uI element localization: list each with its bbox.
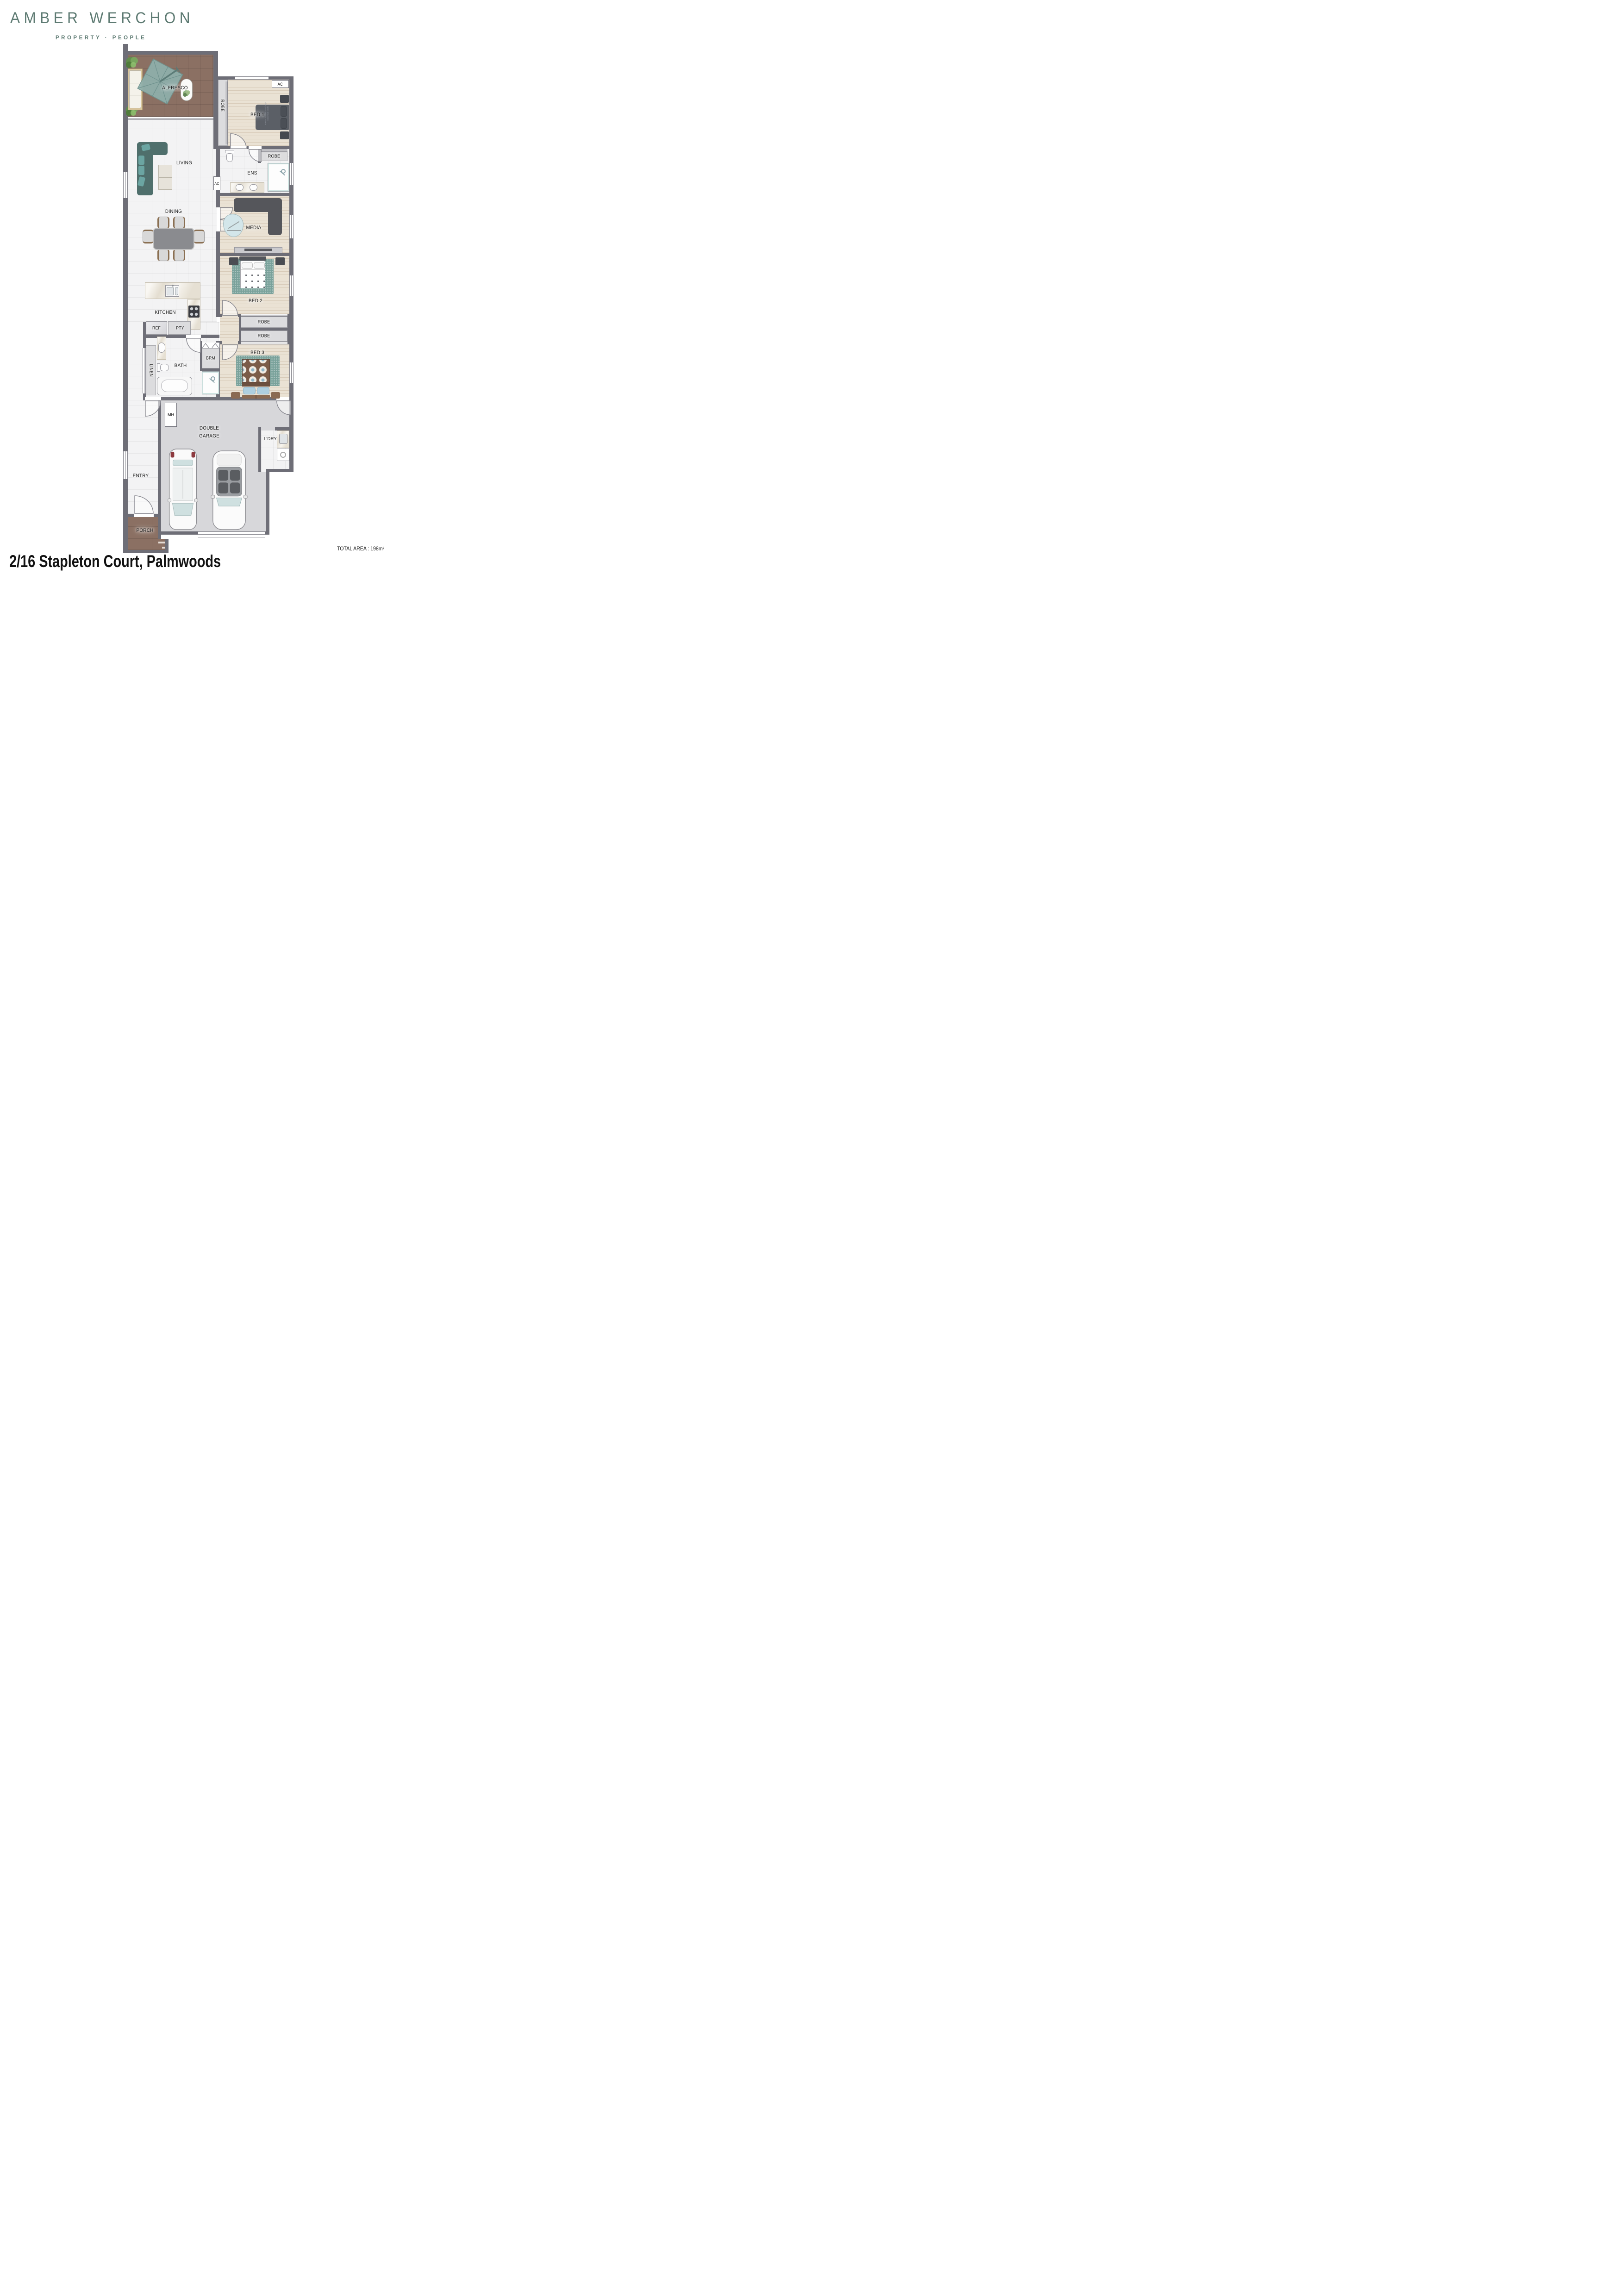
bed3-robe-slider: [241, 342, 287, 344]
wall-garage-top-a: [143, 397, 145, 400]
room-label-ens-robe: ROBE: [268, 154, 281, 159]
room-label-bed2: BED 2: [249, 298, 262, 304]
room-label-bed1: BED 1: [250, 112, 264, 118]
bath-shower: [202, 371, 219, 394]
linen-louvre-doors: [143, 348, 146, 393]
ac-unit-bed1: AC: [272, 80, 289, 88]
bath-basin: [158, 343, 165, 353]
kitchen-sink: [165, 285, 179, 297]
window-east-bed2: [289, 275, 294, 296]
ens-basin: [236, 184, 244, 191]
ac-label: AC: [214, 181, 219, 186]
mh-label: MH: [168, 412, 174, 417]
room-label-brm: BRM: [206, 356, 215, 361]
wall-ldry-west: [258, 430, 261, 472]
door-ens: [249, 149, 262, 162]
bathtub-inner: [161, 380, 188, 392]
room-label-garage: DOUBLE GARAGE: [195, 424, 224, 440]
meter-box: MH: [165, 403, 177, 427]
garage-door: [198, 531, 265, 537]
toilet-bowl-ens: [226, 153, 233, 162]
tv-screen: [244, 249, 272, 251]
door-garage-west: [145, 400, 161, 417]
sink-drainer: [175, 287, 178, 295]
bathtub: [157, 377, 192, 395]
bed1-side-table: [280, 131, 289, 139]
dining-chair: [173, 217, 185, 229]
room-label-bath: BATH: [175, 363, 187, 368]
wall-ldry-top-b: [275, 427, 294, 430]
bed2-duvet: [241, 269, 265, 288]
wall-entry-bottom-a: [123, 514, 134, 517]
room-label-entry: ENTRY: [133, 473, 149, 479]
ac-unit-living: AC: [213, 176, 220, 190]
washing-machine: [277, 449, 289, 461]
sofa-cushion: [138, 156, 144, 165]
west-hall-floor: [128, 322, 143, 400]
bed1-pillow: [281, 118, 287, 129]
bed3-side-table: [271, 392, 280, 399]
wall-entry-bottom-b: [154, 514, 161, 517]
ac-label: AC: [278, 82, 283, 87]
dining-chair: [157, 249, 169, 261]
wall-alfresco-east: [213, 51, 218, 149]
wall-media-bottom: [216, 253, 294, 256]
window-east-ens: [289, 163, 294, 185]
bed1-duvet-text: Buenas Noches Good Night bonne nuit Nach…: [264, 101, 269, 126]
wall-garage-bottom-a: [161, 531, 198, 535]
faucet-icon: [172, 285, 174, 287]
alfresco-sliding-door: [128, 117, 213, 120]
room-label-media: MEDIA: [246, 225, 262, 231]
table-decor-line: [227, 230, 241, 231]
media-coffee-table: [223, 214, 244, 237]
window-east-bed3: [289, 362, 294, 383]
table-decor-line: [228, 221, 240, 229]
label-ref: REF: [152, 326, 161, 331]
room-label-bed1-robe: ROBE: [220, 100, 225, 112]
room-label-living: LIVING: [176, 160, 192, 166]
ldry-sink: [279, 434, 287, 444]
bed3-duvet: [242, 359, 270, 382]
wall-bed1-bottom-c: [262, 146, 294, 149]
window-west-entry: [123, 451, 128, 479]
window-east-media: [289, 215, 294, 238]
room-label-robe-bed2: ROBE: [258, 320, 270, 325]
bed3-pillow: [243, 387, 256, 394]
wall-garage-west: [158, 400, 161, 539]
floorplan-page: AMBER WERCHON PROPERTY · PEOPLE: [0, 0, 406, 574]
sofa-cushion: [138, 166, 144, 175]
cooktop-icon: [188, 306, 200, 318]
room-label-dining: DINING: [165, 209, 182, 214]
wall-alfresco-top: [123, 51, 213, 55]
door-bed1: [230, 133, 247, 149]
dining-table: [153, 228, 194, 250]
wall-garage-top-c: [291, 397, 294, 400]
brm-bifold-doors: [202, 343, 219, 348]
bed3-side-table: [231, 392, 240, 399]
wall-bed1-bottom-a: [213, 146, 230, 149]
room-label-ens: ENS: [247, 170, 257, 176]
bed2-pillow: [242, 262, 253, 269]
bed1-side-table: [280, 95, 289, 103]
wall-ldry-top-a: [258, 427, 261, 430]
wall-porch-right: [165, 539, 169, 553]
dining-chair: [143, 230, 154, 243]
toilet-tank-ens: [225, 150, 234, 153]
ens-shower: [268, 163, 289, 192]
toilet-bowl-bath: [160, 364, 169, 371]
brand-logo: AMBER WERCHON: [10, 9, 194, 27]
door-garage-east: [276, 400, 291, 415]
window-bed1-top: [235, 76, 269, 80]
washer-drum: [280, 452, 286, 458]
wall-notch-horiz: [269, 469, 294, 472]
room-label-porch: PORCH: [136, 528, 153, 533]
sink-basin: [167, 287, 174, 295]
toilet-tank-bath: [157, 363, 160, 372]
wall-bed1-bottom-b: [247, 146, 249, 149]
room-label-bed3: BED 3: [250, 350, 264, 356]
bed1-pillow: [281, 106, 287, 117]
garage-notch-cutout: [269, 472, 294, 535]
bed2-pillow: [254, 262, 265, 269]
bed3-pillow: [257, 387, 269, 394]
dining-chair: [194, 230, 205, 243]
bed3-footboard: [242, 395, 270, 399]
bed1-robe-slider: [225, 81, 228, 144]
bed2-bed: [240, 261, 265, 288]
room-label-ldry: L'DRY: [264, 436, 277, 442]
door-front: [134, 495, 154, 514]
media-sofa-right: [268, 208, 282, 235]
window-west-living: [123, 172, 128, 198]
bed2-headboard: [239, 256, 266, 261]
property-address: 2/16 Stapleton Court, Palmwoods: [9, 552, 221, 571]
wall-bath-top-b: [201, 335, 219, 338]
wall-notch-vert: [266, 469, 269, 535]
label-pty: PTY: [176, 326, 184, 331]
room-label-linen: LINEN: [149, 364, 154, 377]
brand-tagline: PROPERTY · PEOPLE: [56, 35, 146, 41]
room-label-robe-bed3: ROBE: [258, 334, 270, 339]
bed2-side-table: [275, 257, 285, 265]
wall-bed2-bottom-a: [216, 314, 222, 317]
wall-mid-b: [216, 231, 220, 317]
room-label-alfresco: ALFRESCO: [162, 85, 188, 91]
ens-basin: [250, 184, 257, 191]
door-bed2: [222, 300, 238, 316]
bed2-side-table: [229, 257, 238, 265]
living-coffee-table: [158, 165, 172, 190]
bed3-band: [242, 382, 270, 387]
car-wagon: [168, 448, 198, 530]
dining-chair: [157, 217, 169, 229]
total-area: TOTAL AREA : 198m²: [337, 546, 384, 552]
dining-chair: [173, 249, 185, 261]
car-convertible: [211, 450, 248, 530]
room-label-kitchen: KITCHEN: [155, 310, 175, 315]
wall-ens-bottom: [216, 193, 294, 196]
door-bed3: [222, 344, 238, 360]
umbrella-icon: [137, 58, 183, 105]
door-bath: [186, 338, 201, 353]
